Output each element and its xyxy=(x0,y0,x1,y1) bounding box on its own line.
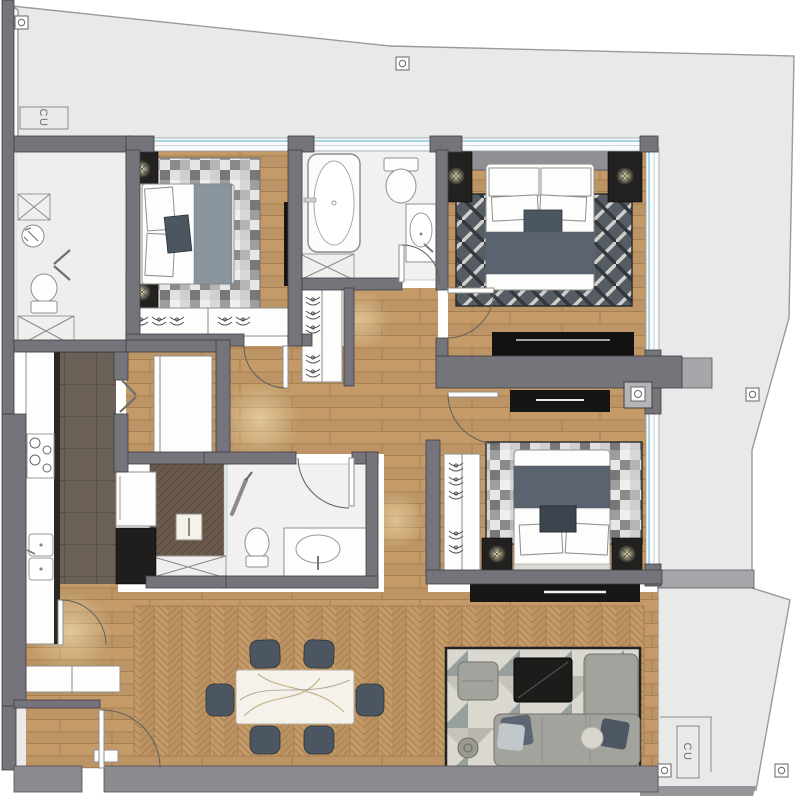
corner-sink xyxy=(22,225,44,247)
toilet xyxy=(31,274,57,313)
table-lamp xyxy=(618,545,636,563)
party-wall-west xyxy=(2,414,26,706)
shower-floor xyxy=(150,464,226,556)
floor-plan-drawing: CU CU xyxy=(0,0,800,796)
utility-north-wall xyxy=(126,340,218,352)
bedroom3-south-wall xyxy=(426,570,662,584)
vanity-sink xyxy=(406,204,436,262)
wardrobe-back-wall xyxy=(344,288,354,386)
column-symbol xyxy=(15,16,28,29)
tub-faucet xyxy=(304,198,316,202)
bathroom2-north-wall xyxy=(204,452,296,464)
shaft xyxy=(18,194,50,220)
bedroom1-wardrobe xyxy=(126,308,296,336)
toilet xyxy=(245,528,269,567)
side-table xyxy=(458,738,478,758)
column-symbol xyxy=(658,764,671,777)
light-glow xyxy=(220,380,300,460)
floor-plan: CU CU xyxy=(0,0,800,796)
refrigerator xyxy=(116,472,156,526)
foyer-console xyxy=(26,666,120,692)
table-lamp xyxy=(447,167,465,185)
master-tv-panel xyxy=(492,332,634,356)
kitchen-tall-cabinet xyxy=(116,528,156,584)
column-symbol xyxy=(396,57,409,70)
utility-appliance xyxy=(154,356,212,454)
entry-wall xyxy=(14,700,100,708)
kitchen-east-wall xyxy=(114,414,128,472)
structural-column xyxy=(624,382,652,408)
accent-cushion xyxy=(540,506,576,532)
south-door-detail xyxy=(94,750,118,762)
master-blanket xyxy=(486,232,594,274)
shaft xyxy=(150,556,226,578)
bathtub xyxy=(304,154,360,252)
north-wall xyxy=(14,136,132,152)
party-wall-west xyxy=(2,706,16,770)
bedroom1-bath-wall xyxy=(288,150,302,346)
sofa-pillow xyxy=(497,723,526,752)
bathroom1-east-wall xyxy=(436,150,448,290)
vanity-sink xyxy=(284,528,368,578)
kitchen-east-wall xyxy=(114,352,128,380)
table-lamp xyxy=(616,167,634,185)
utility-east-wall xyxy=(216,340,230,464)
dining-table xyxy=(236,670,354,724)
window-pier xyxy=(640,136,658,152)
shower-south-wall xyxy=(146,576,226,588)
fur-pillow xyxy=(581,727,603,749)
table-lamp xyxy=(488,545,506,563)
accent-cushion xyxy=(164,215,192,253)
terrace-divider-wall xyxy=(658,570,754,588)
column-symbol xyxy=(775,764,788,777)
bathroom2-south-wall xyxy=(222,576,378,588)
shower-glass xyxy=(224,464,227,556)
foyer xyxy=(26,666,120,692)
bedroom1-west-wall xyxy=(126,150,140,346)
south-wall xyxy=(104,766,658,792)
kitchen-north-wall xyxy=(14,340,128,352)
condenser-unit-label: CU xyxy=(37,109,49,128)
cooktop xyxy=(27,434,54,478)
kitchen-counter xyxy=(26,352,56,644)
pillow xyxy=(489,168,539,196)
bedroom3-blanket xyxy=(514,466,610,508)
bedroom3-west-wall xyxy=(426,440,440,576)
south-wall xyxy=(14,766,82,792)
column-symbol xyxy=(746,388,759,401)
toilet xyxy=(384,158,418,203)
bedroom3-wardrobe xyxy=(444,454,480,572)
condenser-unit-label: CU xyxy=(681,743,693,762)
pillow xyxy=(541,168,591,196)
party-wall-west xyxy=(2,0,14,414)
bathroom2-east-wall xyxy=(366,452,378,588)
bedroom1-bed-runner xyxy=(194,184,232,284)
terrace-wall-stub xyxy=(682,358,712,388)
shaft xyxy=(300,254,354,280)
wall-stub xyxy=(436,338,448,356)
